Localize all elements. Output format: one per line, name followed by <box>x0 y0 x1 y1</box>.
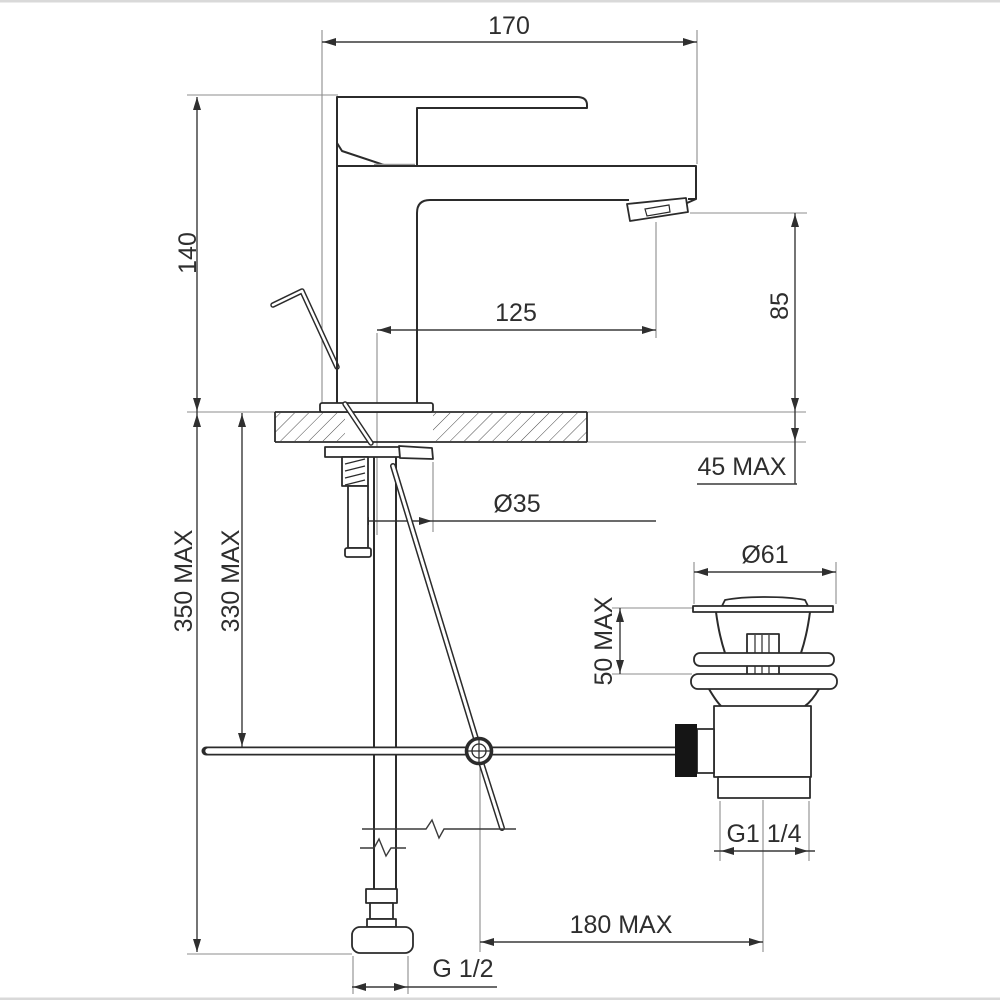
hose-ring <box>367 919 396 927</box>
dim-label-hose-length: 350 MAX <box>170 529 198 632</box>
dim-label-spout-outlet-height: 85 <box>766 292 794 320</box>
countertop-hatch-left <box>275 413 345 441</box>
supply-nut-g12 <box>352 927 413 953</box>
dim-label-waste-flange-diameter: Ø61 <box>741 541 788 569</box>
dim-label-rod-to-waste-offset: 180 MAX <box>570 911 673 939</box>
page-top-border <box>0 0 1000 3</box>
base-flange <box>320 403 433 412</box>
dim-label-tap-hole-diameter: Ø35 <box>493 490 540 518</box>
countertop <box>275 412 587 442</box>
pop-up-pull-rod <box>273 291 337 367</box>
drawing-canvas: 170 140 125 85 45 MAX Ø35 350 MAX 330 MA… <box>0 0 1000 1000</box>
waste-plug-dome <box>722 597 808 606</box>
dim-label-deck-thickness: 45 MAX <box>698 453 787 481</box>
rod-pivot-joint <box>467 739 492 764</box>
rod-inlet-seal <box>675 724 697 777</box>
countertop-hatch-right <box>433 413 587 441</box>
break-lines <box>360 820 516 856</box>
rod-inlet-connector <box>697 729 714 773</box>
mounting-stud <box>348 486 368 548</box>
dim-label-waste-above-basin: 50 MAX <box>590 596 618 685</box>
waste-tee-body <box>714 706 811 777</box>
dim-label-supply-thread: G 1/2 <box>432 955 493 983</box>
dim-label-spout-depth: 170 <box>488 12 530 40</box>
waste-tail-g114 <box>718 777 810 798</box>
mounting-washer <box>325 447 410 457</box>
technical-drawing: 170 140 125 85 45 MAX Ø35 350 MAX 330 MA… <box>0 0 1000 1000</box>
dim-label-rod-length: 330 MAX <box>217 529 245 632</box>
aerator <box>627 198 688 221</box>
body-and-spout <box>337 97 696 403</box>
handle-lever <box>337 97 587 165</box>
dimension-labels: 170 140 125 85 45 MAX Ø35 350 MAX 330 MA… <box>170 12 802 983</box>
stud-end <box>345 548 371 557</box>
faucet <box>273 97 696 412</box>
hose-neck <box>370 903 393 919</box>
waste-flange <box>693 606 833 612</box>
waste-washer-upper <box>694 653 834 666</box>
dim-label-height-above-deck: 140 <box>174 232 202 274</box>
waste-taper <box>709 689 819 706</box>
waste-washer-lower <box>691 674 837 689</box>
dim-label-spout-reach: 125 <box>495 299 537 327</box>
clamp-plate <box>399 446 433 459</box>
hose-collar <box>366 889 397 903</box>
waste-assembly <box>675 597 837 798</box>
dim-label-waste-thread: G1 1/4 <box>726 820 801 848</box>
